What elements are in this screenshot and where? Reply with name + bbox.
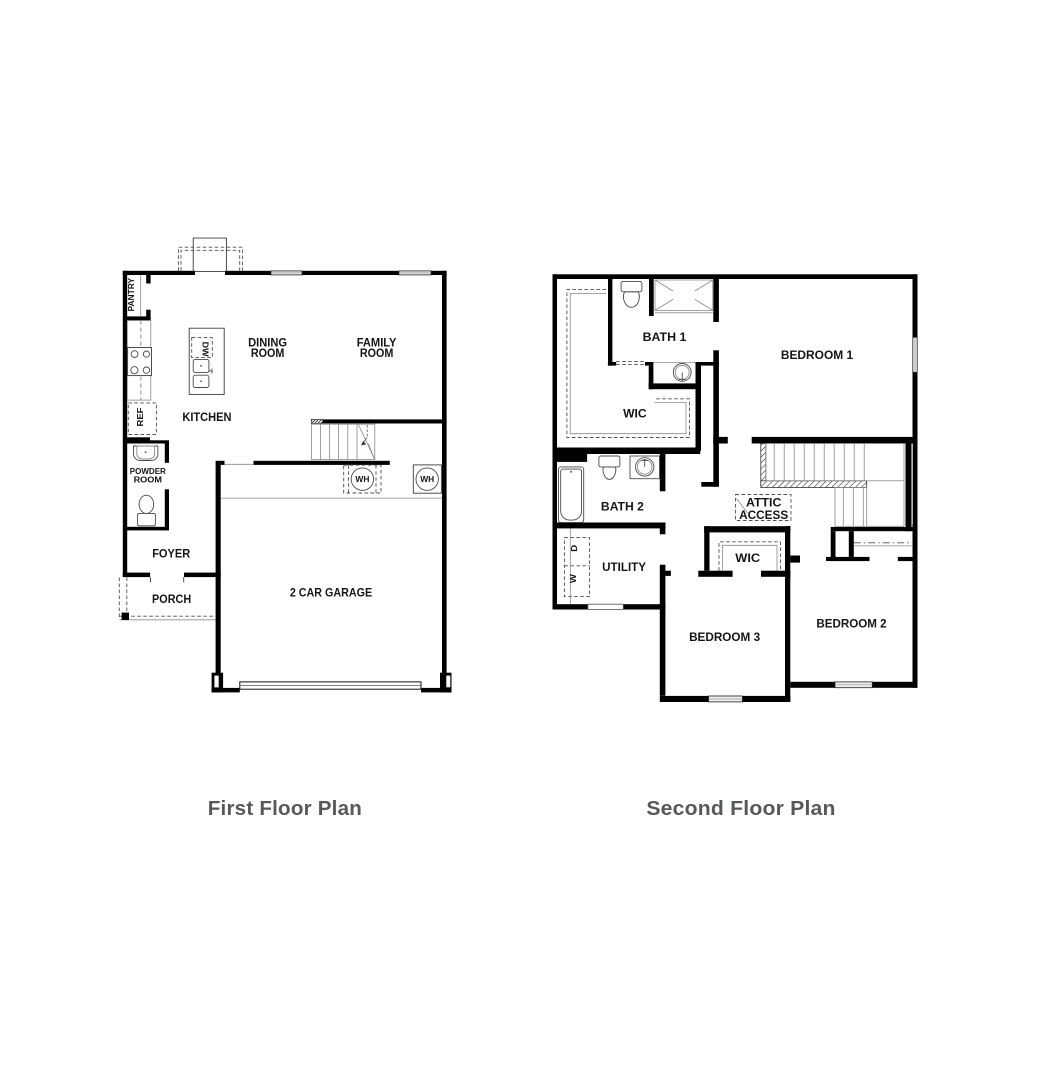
svg-text:DW: DW [201, 342, 211, 358]
svg-text:WH: WH [420, 474, 434, 484]
svg-text:ACCESS: ACCESS [739, 510, 788, 522]
svg-text:BATH 1: BATH 1 [643, 332, 687, 344]
svg-text:First Floor Plan: First Floor Plan [208, 797, 362, 820]
svg-text:PANTRY: PANTRY [126, 278, 136, 312]
svg-text:REF: REF [135, 408, 145, 427]
svg-text:ROOM: ROOM [134, 475, 162, 485]
svg-text:WH: WH [355, 474, 369, 484]
svg-text:2 CAR GARAGE: 2 CAR GARAGE [290, 588, 373, 600]
svg-text:BEDROOM 1: BEDROOM 1 [781, 350, 854, 362]
svg-text:Second Floor Plan: Second Floor Plan [646, 797, 835, 820]
svg-text:KITCHEN: KITCHEN [182, 412, 231, 424]
svg-text:ROOM: ROOM [251, 348, 285, 360]
svg-text:ROOM: ROOM [360, 348, 394, 360]
svg-text:WIC: WIC [623, 409, 647, 421]
svg-text:D: D [569, 545, 579, 552]
svg-text:BEDROOM 3: BEDROOM 3 [689, 632, 760, 644]
svg-text:UTILITY: UTILITY [602, 562, 646, 574]
svg-text:W: W [568, 573, 578, 583]
svg-text:FOYER: FOYER [152, 548, 191, 560]
svg-text:WIC: WIC [735, 553, 760, 565]
svg-text:ATTIC: ATTIC [746, 498, 781, 510]
svg-text:PORCH: PORCH [152, 594, 191, 606]
svg-text:BEDROOM 2: BEDROOM 2 [816, 619, 886, 631]
svg-text:BATH 2: BATH 2 [601, 502, 644, 514]
